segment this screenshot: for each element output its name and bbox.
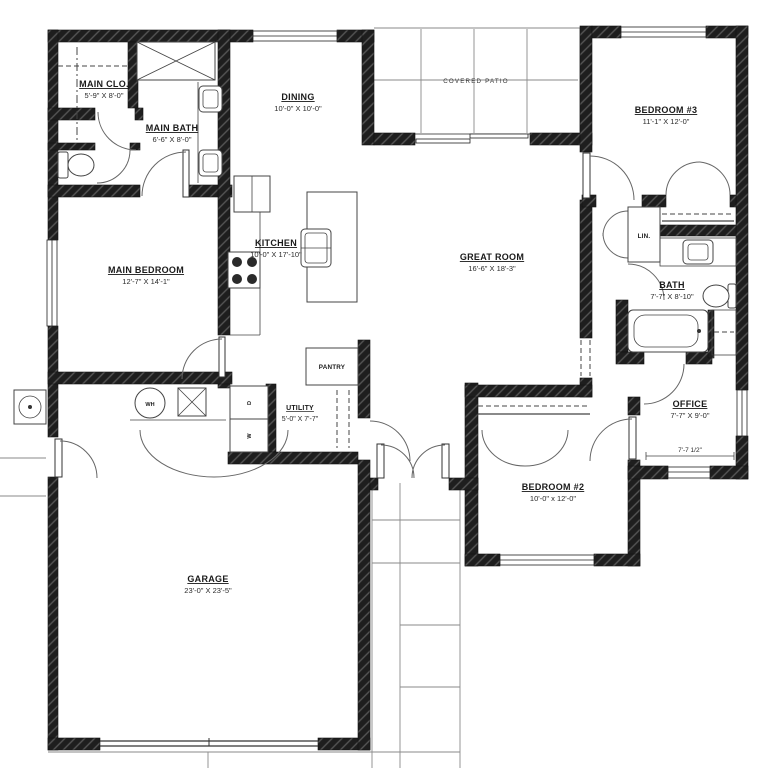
great-room-label: GREAT ROOM xyxy=(460,252,524,262)
shower-fixture xyxy=(137,42,215,80)
main-bath-dims: 6'-6" X 8'-0" xyxy=(152,135,191,144)
utility-label: UTILITY xyxy=(286,405,314,412)
bedroom3-dims: 11'-1" X 12'-0" xyxy=(643,117,690,126)
office-label: OFFICE xyxy=(673,399,708,409)
great-room-dims: 16'-6" X 18'-3" xyxy=(468,264,516,273)
utility-dims: 5'-0" X 7'-7" xyxy=(282,416,319,423)
washer-label: W xyxy=(247,433,253,439)
bedroom2-dims: 10'-0" x 12'-0" xyxy=(530,494,576,503)
bedroom2-label: BEDROOM #2 xyxy=(522,482,585,492)
pantry-label: PANTRY xyxy=(319,364,346,371)
garage-label: GARAGE xyxy=(187,574,228,584)
washer-dryer xyxy=(230,386,268,452)
main-bedroom-label: MAIN BEDROOM xyxy=(108,265,184,275)
linen-label: LIN. xyxy=(638,233,651,240)
water-heater-label: WH xyxy=(145,402,154,408)
ac-pad xyxy=(14,390,46,424)
main-closet-dims: 5'-9" X 8'-0" xyxy=(84,91,123,100)
floor-plan: MAIN CLO. 5'-9" X 8'-0" MAIN BATH 6'-6" … xyxy=(0,0,768,768)
dining-dims: 10'-0" X 10'-0" xyxy=(274,104,322,113)
bedroom3-label: BEDROOM #3 xyxy=(635,105,698,115)
dining-label: DINING xyxy=(281,92,314,102)
main-bedroom-dims: 12'-7" X 14'-1" xyxy=(122,277,170,286)
office-south-window xyxy=(668,467,710,478)
dining-window xyxy=(253,31,337,41)
kitchen-label: KITCHEN xyxy=(255,238,297,248)
bath-toilet xyxy=(703,284,736,308)
bedroom3-window xyxy=(621,27,706,37)
office-dims: 7'-7" X 9'-0" xyxy=(670,411,709,420)
bedroom2-south-window xyxy=(500,555,594,565)
bath-dims: 7'-7" X 8'-10" xyxy=(650,292,694,301)
fridge-fixture xyxy=(234,176,270,212)
kitchen-dims: 10'-0" X 17'-10" xyxy=(250,250,302,259)
office-floor-dim: 7'-7 1/2" xyxy=(678,447,702,454)
water-closet-toilet xyxy=(58,152,94,178)
kitchen-island xyxy=(301,192,357,302)
main-bath-label: MAIN BATH xyxy=(146,123,199,133)
dryer-label: D xyxy=(247,401,253,405)
covered-patio-label: COVERED PATIO xyxy=(443,78,509,85)
bathtub-fixture xyxy=(628,310,708,352)
bath-label: BATH xyxy=(659,280,685,290)
main-closet-label: MAIN CLO. xyxy=(79,79,129,89)
garage-dims: 23'-0" X 23'-5" xyxy=(184,586,232,595)
office-east-window xyxy=(737,390,747,436)
main-bedroom-window xyxy=(47,240,57,326)
